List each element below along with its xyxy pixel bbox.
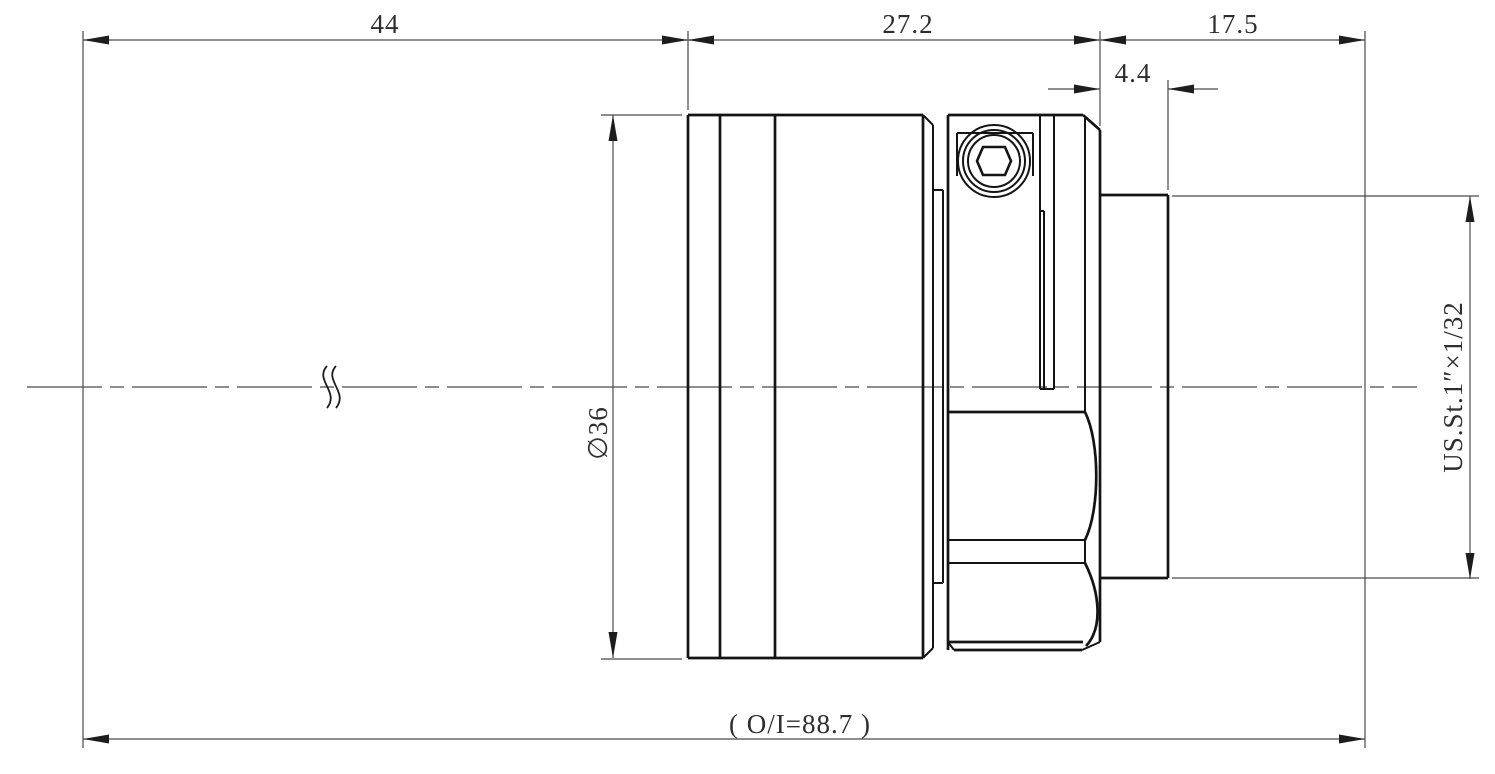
extension-lines [83,31,1365,748]
dimension-thread: US.St.1″×1/32 [1438,196,1475,579]
drawing-sheet: 44 27.2 17.5 4.4 ∅36 US.St.1″×1/32 ( O/I… [0,0,1495,774]
arrowhead [1466,553,1475,579]
cad-drawing-canvas: 44 27.2 17.5 4.4 ∅36 US.St.1″×1/32 ( O/I… [0,0,1495,774]
arrowhead [1074,85,1100,94]
dim-27-2-label: 27.2 [882,9,933,39]
arrowhead [83,36,109,45]
part-clamp-ring [948,115,1100,650]
arrowhead [1074,36,1100,45]
dim-overall-label: ( O/I=88.7 ) [729,709,871,739]
arrowhead [1168,85,1194,94]
part-clamp-slot [1040,115,1054,389]
arrowhead [83,735,109,744]
arrowhead [609,632,618,658]
hex-chamfer-arc [1085,412,1096,540]
dimension-overall: ( O/I=88.7 ) [83,709,1365,744]
screw-head-chamfer-circle [963,130,1025,192]
arrowhead [1339,36,1365,45]
dim-44-label: 44 [371,9,400,39]
dim-4-4-label: 4.4 [1115,58,1152,88]
hex-chamfer-arc [1085,563,1098,646]
arrowhead [662,36,688,45]
dimension-top-row: 44 27.2 17.5 [83,9,1365,45]
arrowhead [1466,196,1475,222]
part-hex-flats [948,412,1100,650]
dim-thread-label: US.St.1″×1/32 [1438,301,1468,473]
arrowhead [609,115,618,141]
arrowhead [1339,735,1365,744]
hex-socket-icon [977,147,1011,175]
arrowhead [1100,36,1126,45]
part-set-screw [957,125,1033,197]
dim-17-5-label: 17.5 [1207,9,1258,39]
dimension-4-4: 4.4 [1048,58,1218,94]
arrowhead [688,36,714,45]
dim-diameter-36-label: ∅36 [583,406,613,460]
